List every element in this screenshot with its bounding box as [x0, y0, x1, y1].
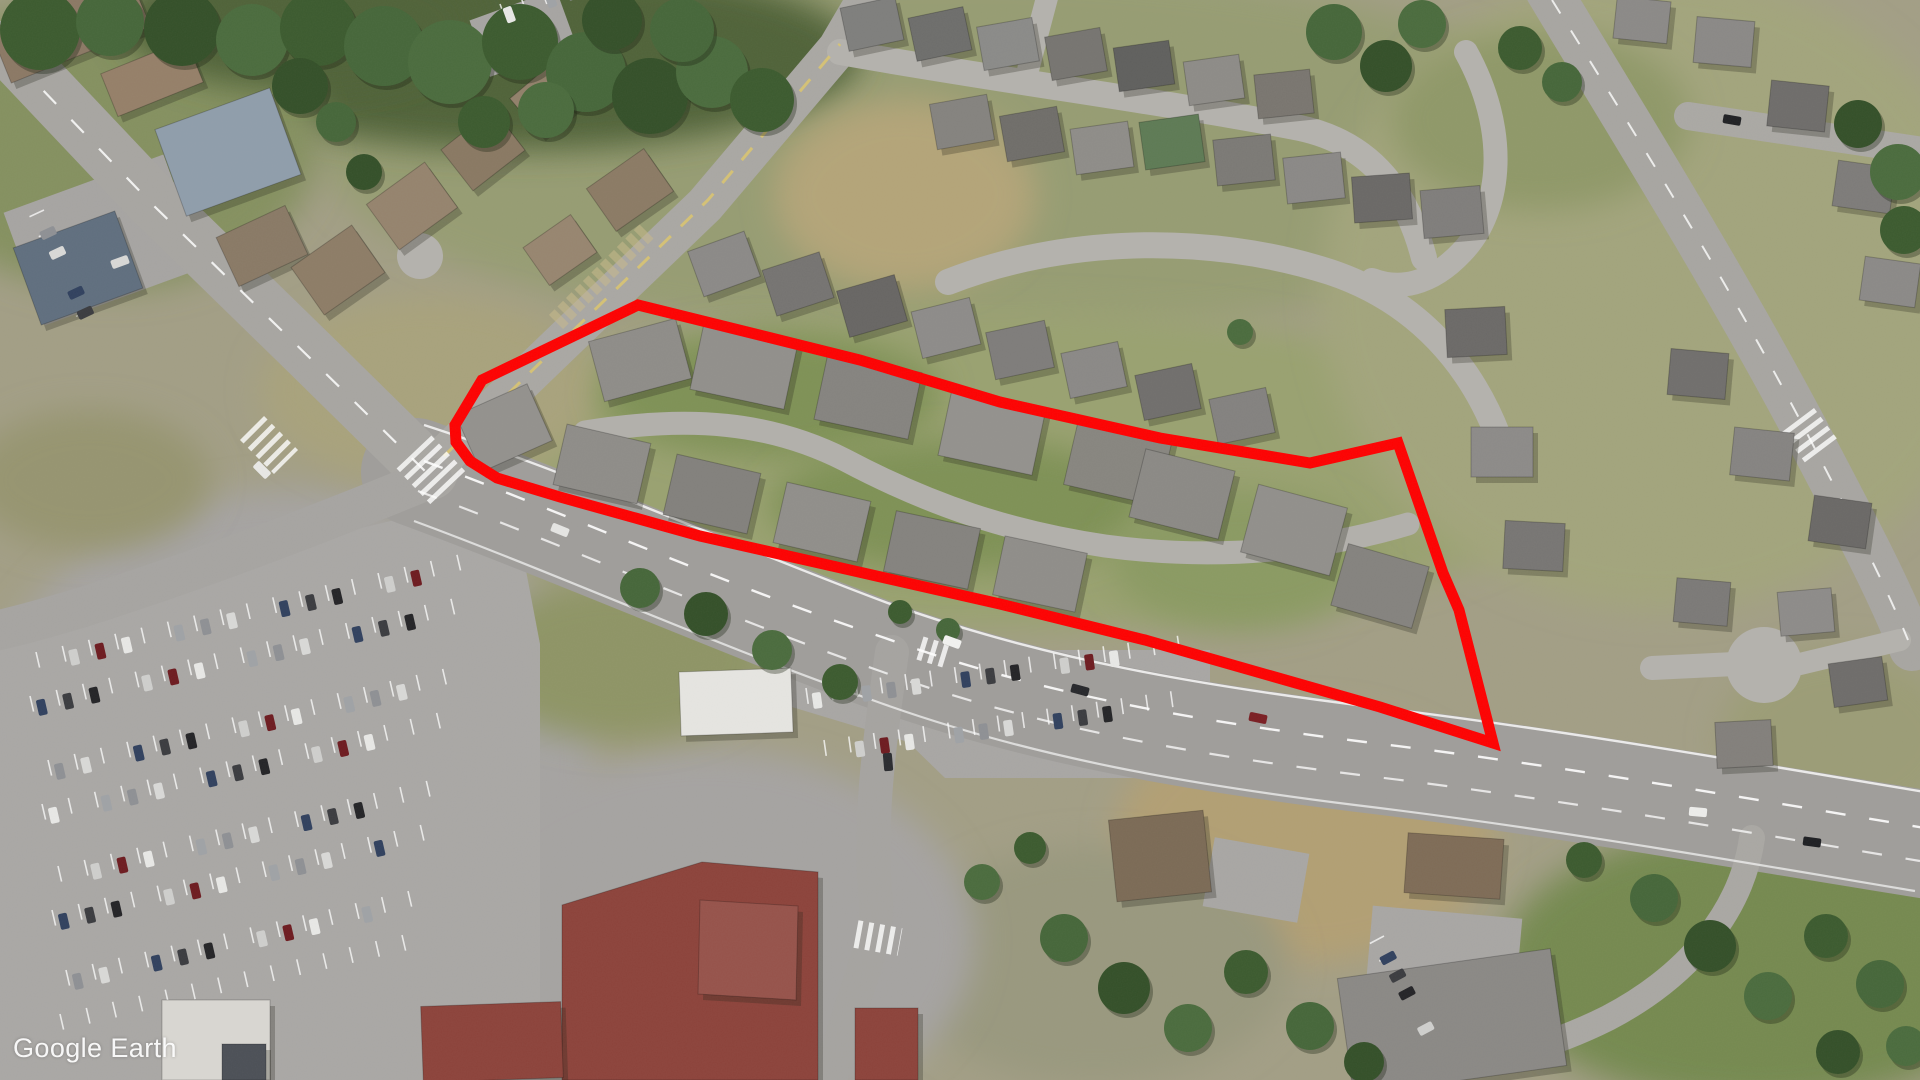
- satellite-map[interactable]: [0, 0, 1920, 1080]
- grain-overlay: [0, 0, 1920, 1080]
- image-grain: [0, 0, 1920, 1080]
- google-earth-viewport[interactable]: Google Earth: [0, 0, 1920, 1080]
